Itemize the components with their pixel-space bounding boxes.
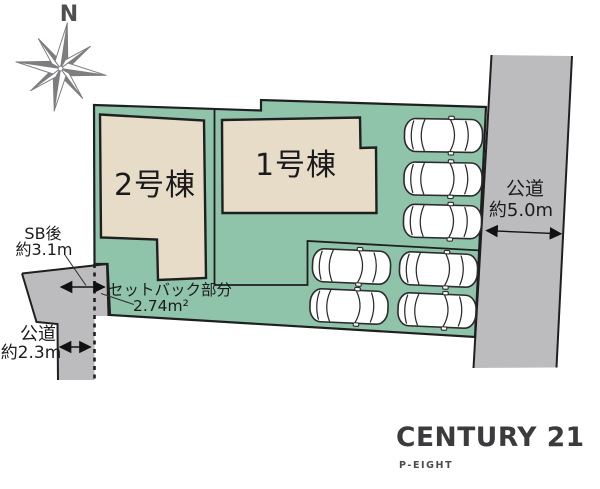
car-icon <box>397 289 477 331</box>
site-plan-drawing <box>0 0 600 489</box>
car-icon <box>309 285 389 327</box>
compass-rose-icon <box>10 16 113 117</box>
road-east-name: 公道 <box>494 180 556 200</box>
site-plan-page: N SB後 約3.1m セットバック部分 2.74m² 公道 約2.3m 公道 … <box>0 0 600 489</box>
brand-office-name: P-EIGHT <box>399 461 453 471</box>
road-west-width: 約2.3m <box>0 345 62 363</box>
building-2-label: 2号棟 <box>105 170 205 202</box>
brand-logo: CENTURY 21 <box>396 424 592 452</box>
setback-after-value: 約3.1m <box>8 242 80 259</box>
building-1-label: 1号棟 <box>246 150 346 182</box>
north-label: N <box>54 3 84 26</box>
setback-part-label: セットバック部分 <box>108 282 232 298</box>
car-icon <box>404 115 483 155</box>
car-icon <box>312 245 392 287</box>
setback-part-area: 2.74m² <box>133 298 189 314</box>
road-east-width: 約5.0m <box>484 202 558 221</box>
car-icon <box>399 248 479 290</box>
car-icon <box>404 159 483 199</box>
car-icon <box>403 201 482 242</box>
